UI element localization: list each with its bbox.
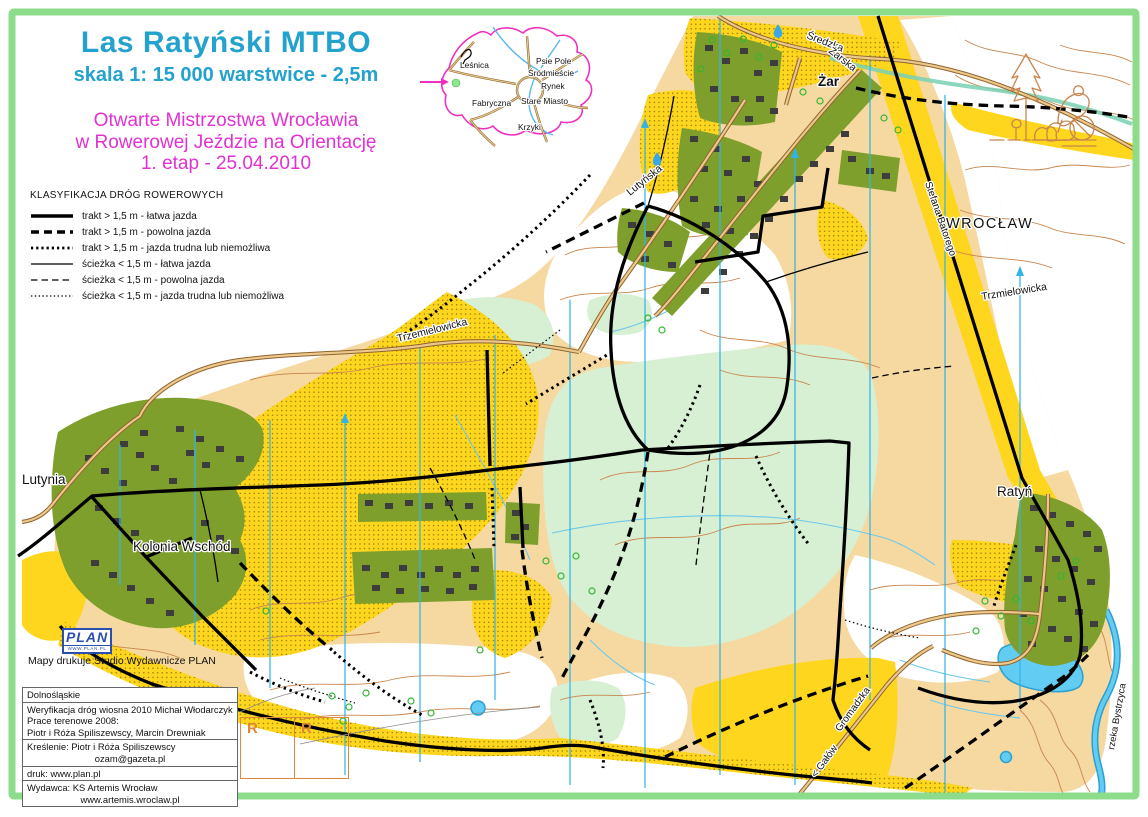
plan-logo-url: WWW.PLAN.PL xyxy=(64,645,110,652)
credits-drawing: Kreślenie: Piotr i Róża Spiliszewscy oza… xyxy=(23,739,237,765)
label-ratyn: Ratyń xyxy=(997,484,1032,499)
registration-mark-r: R xyxy=(241,718,294,737)
line-sample-thin-dashed xyxy=(30,276,76,284)
legend-row: trakt > 1,5 m - powolna jazda xyxy=(30,224,370,240)
inset-pointer-arrowhead xyxy=(441,78,449,86)
legend-label: trakt > 1,5 m - łatwa jazda xyxy=(82,211,197,222)
legend-label: ścieżka < 1,5 m - powolna jazda xyxy=(82,275,225,286)
label-wroclaw: WROCŁAW xyxy=(946,216,1033,232)
registration-mark-r: R xyxy=(295,718,348,737)
scale-line: skala 1: 15 000 warstwice - 2,5m xyxy=(36,64,416,87)
credits-region: Dolnośląskie xyxy=(23,688,237,702)
credits-publisher: Wydawca: KS Artemis Wrocław www.artemis.… xyxy=(23,780,237,806)
registration-cell: R xyxy=(240,717,295,779)
inset-label-srodmiescie: Śródmieście xyxy=(528,67,574,78)
inset-label-rynek: Rynek xyxy=(541,81,566,91)
page-title: Las Ratyński MTBO xyxy=(36,26,416,60)
legend-row: trakt > 1,5 m - jazda trudna lub niemożl… xyxy=(30,240,370,256)
inset-label-fabryczna: Fabryczna xyxy=(472,98,511,108)
registration-cell: R xyxy=(295,717,349,779)
title-block: Las Ratyński MTBO skala 1: 15 000 warstw… xyxy=(36,26,416,87)
event-line-3: 1. etap - 25.04.2010 xyxy=(26,153,426,175)
plan-logo: PLAN WWW.PLAN.PL xyxy=(62,628,112,654)
registration-marks: R R xyxy=(240,717,349,779)
plan-logo-word: PLAN xyxy=(64,630,110,645)
label-zar: Żar xyxy=(818,74,840,89)
legend-label: trakt > 1,5 m - powolna jazda xyxy=(82,227,211,238)
inset-location-dot xyxy=(452,79,460,87)
legend-row: ścieżka < 1,5 m - łatwa jazda xyxy=(30,256,370,272)
inset-label-lesnica: Leśnica xyxy=(460,60,489,70)
credits-print: druk: www.plan.pl xyxy=(23,766,237,781)
credits-box: Dolnośląskie Weryfikacja dróg wiosna 201… xyxy=(22,687,238,807)
print-note: Mapy drukuje Studio Wydawnicze PLAN xyxy=(28,655,216,667)
legend-row: ścieżka < 1,5 m - powolna jazda xyxy=(30,272,370,288)
line-sample-thin-dotted xyxy=(30,292,76,300)
label-lutynia: Lutynia xyxy=(22,472,66,487)
legend-row: trakt > 1,5 m - łatwa jazda xyxy=(30,208,370,224)
label-kolonia-wschod: Kolonia Wschód xyxy=(133,539,231,554)
legend-label: trakt > 1,5 m - jazda trudna lub niemożl… xyxy=(82,243,270,254)
inset-map: Leśnica Psie Pole Śródmieście Rynek Fabr… xyxy=(420,27,592,146)
inset-label-krzyki: Krzyki xyxy=(518,122,541,132)
legend-label: ścieżka < 1,5 m - łatwa jazda xyxy=(82,259,211,270)
legend-heading: KLASYFIKACJA DRÓG ROWEROWYCH xyxy=(30,190,370,201)
line-sample-thick-dotted xyxy=(30,244,76,252)
legend-row: ścieżka < 1,5 m - jazda trudna lub niemo… xyxy=(30,288,370,304)
legend-label: ścieżka < 1,5 m - jazda trudna lub niemo… xyxy=(82,291,284,302)
line-sample-thick-dashed xyxy=(30,228,76,236)
line-sample-thin-solid xyxy=(30,260,76,268)
legend: KLASYFIKACJA DRÓG ROWEROWYCH trakt > 1,5… xyxy=(30,190,370,304)
line-sample-thick-solid xyxy=(30,212,76,220)
inset-label-psie-pole: Psie Pole xyxy=(536,56,572,66)
inset-label-stare-miasto: Stare Miasto xyxy=(521,96,568,106)
event-line-1: Otwarte Mistrzostwa Wrocławia xyxy=(26,110,426,132)
inset-city-boundary xyxy=(442,28,592,135)
event-line-2: w Rowerowej Jeździe na Orientację xyxy=(26,132,426,154)
credits-fieldwork: Weryfikacja dróg wiosna 2010 Michał Włod… xyxy=(23,702,237,740)
event-title: Otwarte Mistrzostwa Wrocławia w Rowerowe… xyxy=(26,110,426,175)
